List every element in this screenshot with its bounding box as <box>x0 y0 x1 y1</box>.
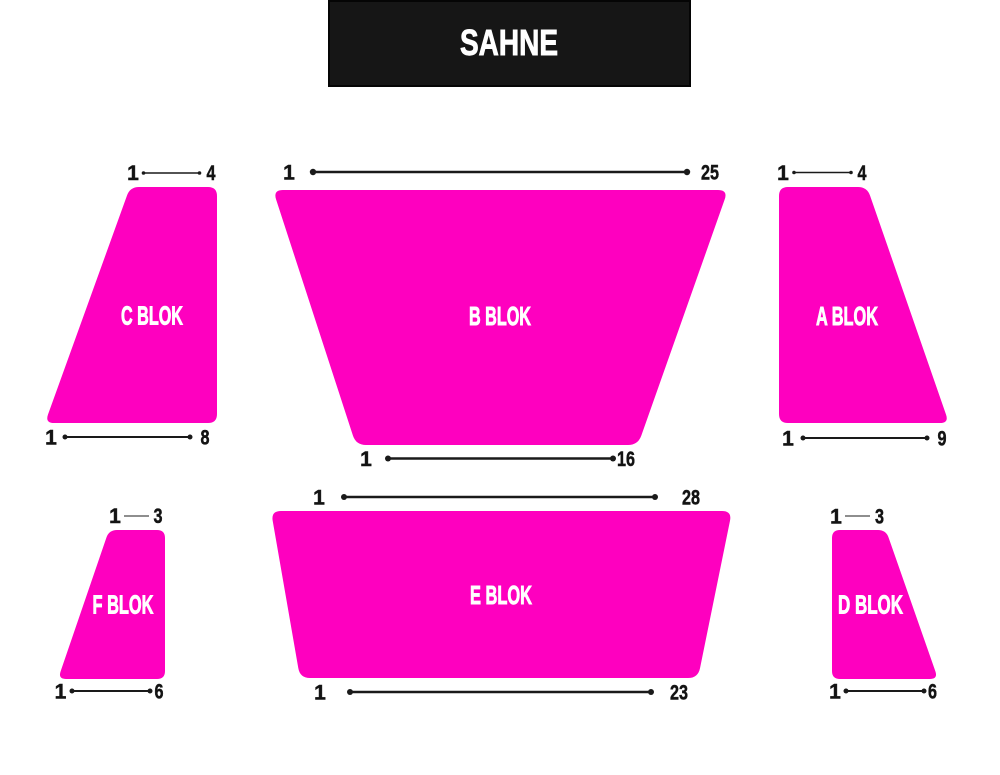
svg-text:9: 9 <box>938 428 947 451</box>
svg-text:8: 8 <box>201 427 210 450</box>
svg-text:1: 1 <box>360 448 372 471</box>
svg-text:D BLOK: D BLOK <box>838 590 903 620</box>
svg-text:4: 4 <box>207 162 216 185</box>
svg-text:1: 1 <box>782 428 794 451</box>
svg-text:E BLOK: E BLOK <box>470 580 532 610</box>
svg-text:1: 1 <box>45 427 57 450</box>
svg-text:3: 3 <box>154 505 163 528</box>
svg-text:1: 1 <box>314 682 326 705</box>
svg-text:6: 6 <box>928 681 937 704</box>
svg-text:1: 1 <box>777 162 789 185</box>
svg-text:1: 1 <box>127 162 139 185</box>
svg-text:C BLOK: C BLOK <box>121 301 183 331</box>
svg-text:1: 1 <box>313 487 325 510</box>
svg-text:1: 1 <box>829 681 841 704</box>
svg-text:A BLOK: A BLOK <box>816 301 878 331</box>
svg-text:3: 3 <box>875 506 884 529</box>
svg-text:1: 1 <box>830 506 842 529</box>
svg-text:SAHNE: SAHNE <box>460 22 558 63</box>
svg-text:F BLOK: F BLOK <box>93 590 154 620</box>
svg-text:B BLOK: B BLOK <box>469 301 531 331</box>
svg-text:25: 25 <box>701 162 719 185</box>
svg-text:16: 16 <box>617 448 635 471</box>
svg-text:4: 4 <box>858 162 867 185</box>
svg-text:1: 1 <box>55 681 67 704</box>
svg-text:1: 1 <box>109 505 121 528</box>
svg-text:23: 23 <box>670 682 688 705</box>
svg-text:28: 28 <box>682 487 700 510</box>
svg-text:1: 1 <box>283 162 295 185</box>
svg-text:6: 6 <box>155 681 164 704</box>
